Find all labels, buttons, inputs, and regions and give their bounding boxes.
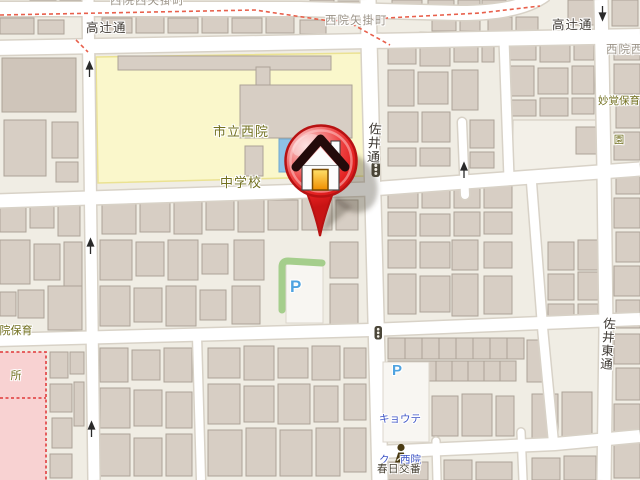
central-parking-lot [282, 261, 323, 323]
kyotech-parking-lot [383, 362, 429, 442]
traffic-light-icon [375, 326, 383, 340]
map-drawing [0, 0, 640, 480]
map-canvas[interactable]: 西院西矢掛町 西院矢掛町 西院西 高辻通 高辻通 佐井通 佐井東通 市立西院 中… [0, 0, 640, 480]
pink-district-zone [0, 352, 46, 480]
